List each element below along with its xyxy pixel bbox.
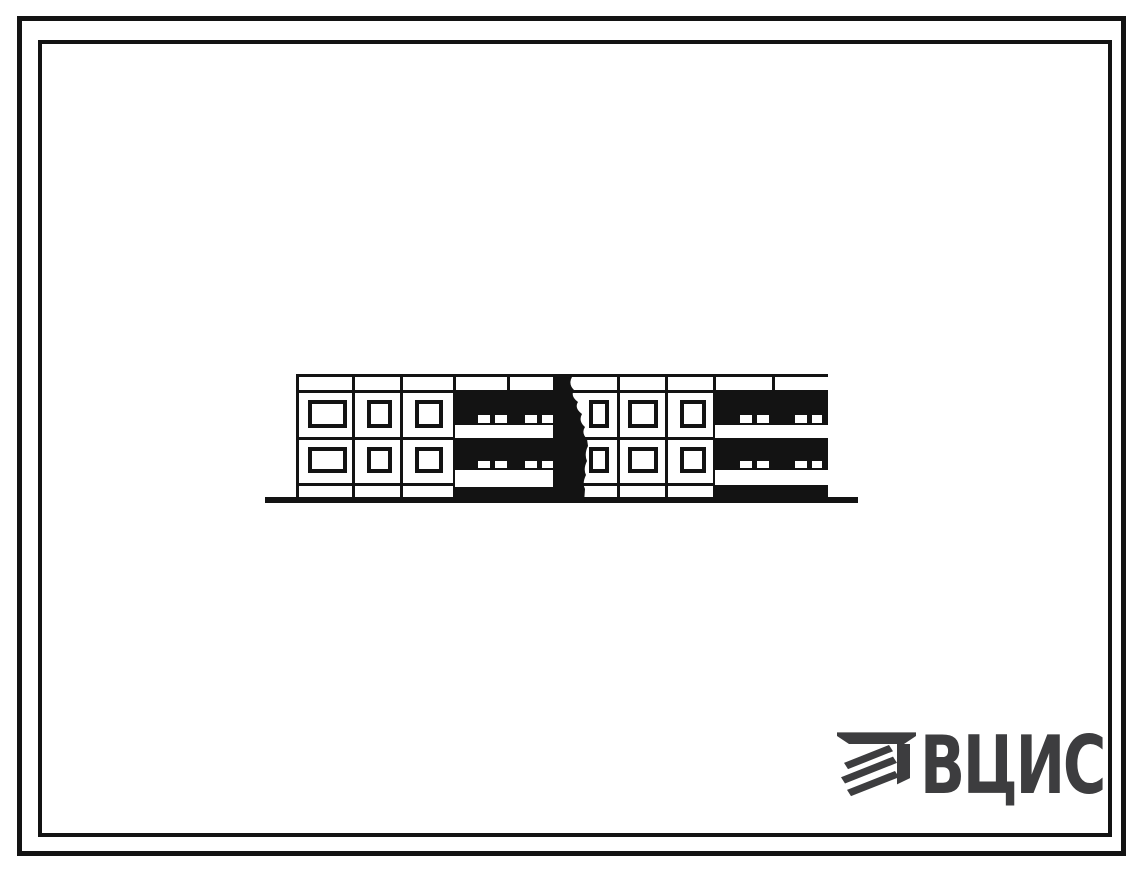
window [680, 400, 706, 428]
window [367, 400, 392, 428]
panel-joint-line [400, 374, 403, 497]
balcony-slab-band [455, 425, 565, 438]
balcony-slab-band [455, 470, 565, 487]
vcis-wordmark: ВЦИС [920, 726, 1104, 808]
balcony-railing [478, 461, 511, 468]
window [415, 447, 443, 473]
window [589, 400, 609, 428]
panel-joint-line [617, 374, 620, 497]
window [589, 447, 609, 473]
balcony-slab-band [715, 470, 828, 485]
vcis-emblem-icon [835, 727, 918, 797]
balcony-railing [795, 461, 822, 468]
window [628, 400, 658, 428]
balcony-railing [478, 415, 511, 423]
loggia-section [455, 393, 565, 503]
building-left-edge [296, 374, 299, 497]
panel-joint-line [665, 374, 668, 497]
balcony-railing [795, 415, 822, 423]
ink-blot-shape [553, 377, 591, 503]
scanned-drawing-page: ВЦИС [0, 0, 1139, 869]
balcony-railing [740, 461, 769, 468]
loggia-section [715, 393, 828, 503]
window [308, 447, 347, 473]
window [680, 447, 706, 473]
balcony-railing [740, 415, 769, 423]
window [308, 400, 347, 428]
window [628, 447, 658, 473]
panel-joint-line [352, 374, 355, 497]
window [415, 400, 443, 428]
window [367, 447, 392, 473]
balcony-slab-band [715, 425, 828, 438]
